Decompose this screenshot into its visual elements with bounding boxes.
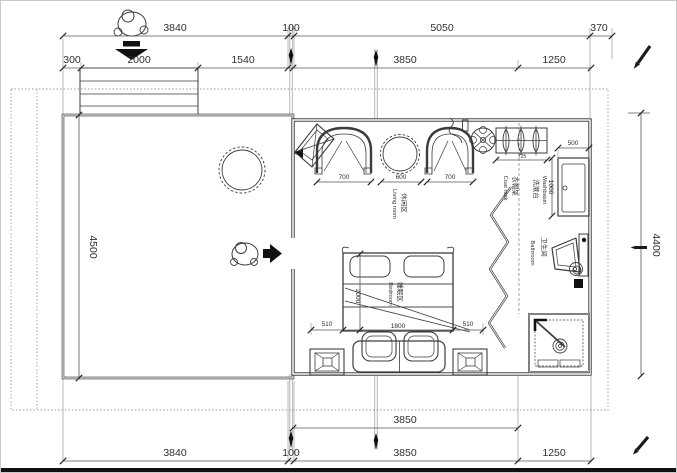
entry-arrow-right-icon <box>263 244 282 263</box>
label-bathroom-en: Bathroom <box>529 240 535 265</box>
dim-bottom-1250: 1250 <box>542 447 566 459</box>
toilet <box>552 234 588 288</box>
dim-table-600: 600 <box>396 174 407 181</box>
dim-bed-510-right: 510 <box>463 321 474 328</box>
section-marker-icon <box>374 50 379 67</box>
bedroom <box>310 247 487 375</box>
foot-bench <box>353 332 445 372</box>
dim-top-370: 370 <box>590 22 608 34</box>
dim-bottom-100: 100 <box>282 447 300 459</box>
label-coatrack-en: Coat rack <box>502 176 508 201</box>
person-icon-top <box>114 10 148 36</box>
dim-chair-700-right: 700 <box>445 174 456 181</box>
dim-top2-1540: 1540 <box>231 54 255 66</box>
dim-top2-300: 300 <box>63 54 81 66</box>
floor-plan-drawing: 3840 100 5050 370 300 2000 1540 3850 125… <box>1 1 677 473</box>
dim-washbasin-500: 500 <box>568 140 579 147</box>
dim-top-100: 100 <box>282 22 300 34</box>
label-washbasin-en: Washbasin <box>541 176 547 204</box>
dim-top2-3850: 3850 <box>393 54 417 66</box>
dim-left-4500: 4500 <box>87 235 99 259</box>
dimensions: 3840 100 5050 370 300 2000 1540 3850 125… <box>60 22 662 464</box>
section-line-mid <box>374 49 379 450</box>
pillow <box>350 256 390 277</box>
washbasin <box>558 158 589 216</box>
folding-partition <box>489 187 511 348</box>
dim-top2-2000: 2000 <box>127 54 151 66</box>
dim-right-4400: 4400 <box>650 233 662 257</box>
label-bedroom-zh: 睡眠区 <box>396 282 404 302</box>
armchair-right <box>425 128 473 174</box>
annotations <box>631 46 651 455</box>
dim-bottom-3840: 3840 <box>163 447 187 459</box>
section-marker-icon <box>374 433 379 450</box>
dim-chair-700-left: 700 <box>339 174 350 181</box>
round-table <box>381 135 420 174</box>
dim-top2-1250: 1250 <box>542 54 566 66</box>
living-room <box>295 118 497 174</box>
entrance-steps <box>80 68 198 115</box>
pencil-icon-top-right <box>634 46 650 69</box>
dim-coatrack-725: 725 <box>518 154 527 160</box>
dim-bottom-3850: 3850 <box>393 447 417 459</box>
dim-bed-1800: 1800 <box>391 323 406 330</box>
label-living-zh: 休闲区 <box>400 193 409 213</box>
label-coatrack-zh: 衣帽架 <box>511 176 520 196</box>
person-icon-entry <box>231 243 259 266</box>
round-side-table <box>219 147 265 193</box>
dim-bed-2000: 2000 <box>354 289 361 304</box>
dim-bottom2-3850: 3850 <box>393 414 417 426</box>
room-labels: 休闲区 Living room 衣帽架 Coat rack 洗漱台 Washba… <box>387 176 549 306</box>
dim-top-5050: 5050 <box>430 22 454 34</box>
dim-bed-510-left: 510 <box>322 321 333 328</box>
section-marker-icon <box>289 48 294 65</box>
shower <box>529 314 589 372</box>
pencil-icon-bottom-right <box>633 437 648 455</box>
nightstand-right <box>453 349 487 375</box>
label-bathroom-zh: 卫生间 <box>540 237 549 257</box>
armchair-left <box>315 128 371 174</box>
coat-rack <box>496 126 547 155</box>
label-bedroom-en: Bedroom <box>387 282 393 306</box>
nightstand-left <box>310 349 344 375</box>
page-bottom-edge <box>1 468 677 473</box>
pillow <box>404 256 444 277</box>
section-marker-icon <box>289 431 294 448</box>
pencil-icon-mid-right <box>631 246 648 250</box>
dim-washbasin-1000: 1000 <box>547 180 554 195</box>
floor-plan-page: 3840 100 5050 370 300 2000 1540 3850 125… <box>0 0 677 473</box>
dim-top-3840: 3840 <box>163 22 187 34</box>
label-washbasin-zh: 洗漱台 <box>532 179 541 199</box>
label-living-en: Living room <box>391 189 397 219</box>
